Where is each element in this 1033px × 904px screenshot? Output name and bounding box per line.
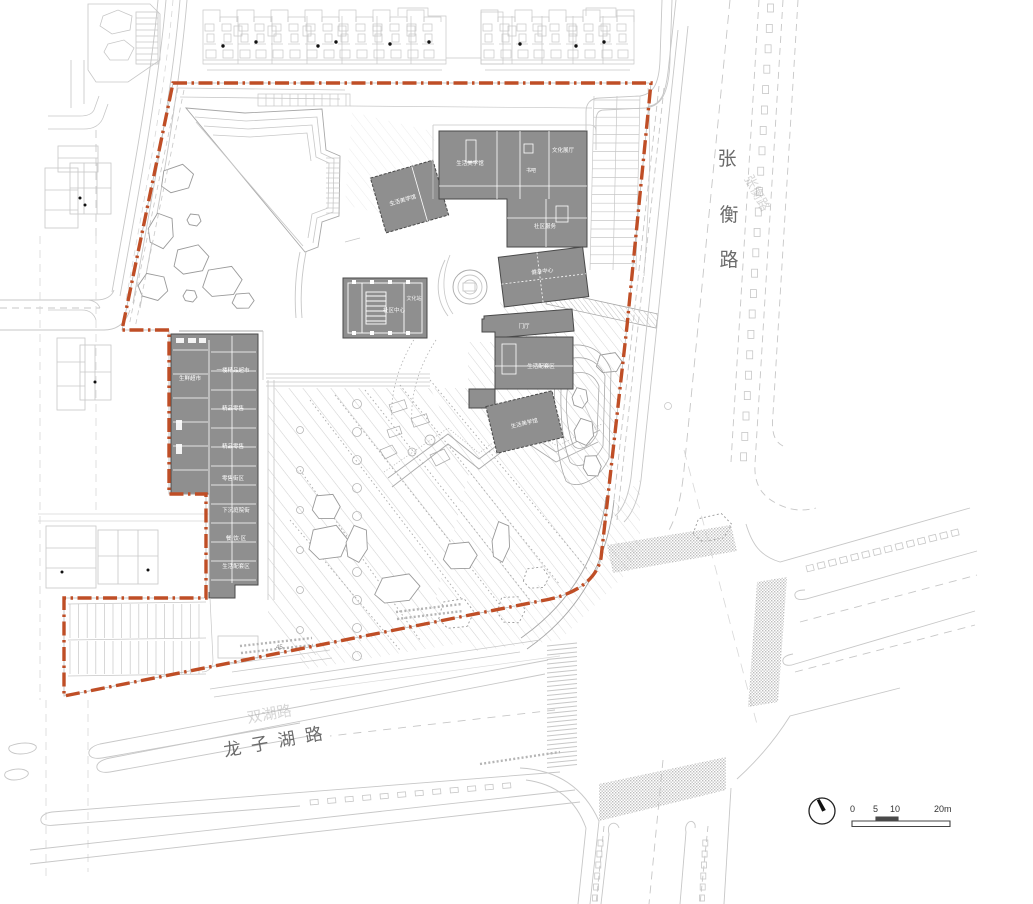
svg-text:衡: 衡 <box>719 204 738 226</box>
svg-text:书吧: 书吧 <box>526 167 536 174</box>
svg-text:生鲜超市: 生鲜超市 <box>179 374 202 382</box>
svg-text:生活配套区: 生活配套区 <box>527 362 555 370</box>
svg-text:20m: 20m <box>934 804 952 814</box>
svg-text:5: 5 <box>873 804 878 814</box>
svg-text:社区中心: 社区中心 <box>383 306 406 314</box>
svg-text:生活美学馆: 生活美学馆 <box>456 159 484 167</box>
svg-text:张: 张 <box>717 148 736 170</box>
svg-text:路: 路 <box>719 249 738 271</box>
svg-text:10: 10 <box>890 804 900 814</box>
svg-text:零售街区: 零售街区 <box>222 474 245 482</box>
svg-text:一楼精品超市: 一楼精品超市 <box>216 366 250 374</box>
svg-text:餐·饮·区: 餐·饮·区 <box>226 534 247 542</box>
svg-text:文化展厅: 文化展厅 <box>552 146 575 154</box>
svg-text:精品零售: 精品零售 <box>222 404 244 412</box>
svg-text:下沉庭院街: 下沉庭院街 <box>222 506 250 514</box>
svg-text:社区服务: 社区服务 <box>534 222 557 230</box>
svg-text:生活配套区: 生活配套区 <box>222 562 250 570</box>
svg-text:精品零售: 精品零售 <box>222 442 244 450</box>
svg-text:45: 45 <box>276 645 283 651</box>
svg-text:文化站: 文化站 <box>406 295 421 302</box>
svg-text:门厅: 门厅 <box>518 322 530 330</box>
svg-text:0: 0 <box>850 804 855 814</box>
